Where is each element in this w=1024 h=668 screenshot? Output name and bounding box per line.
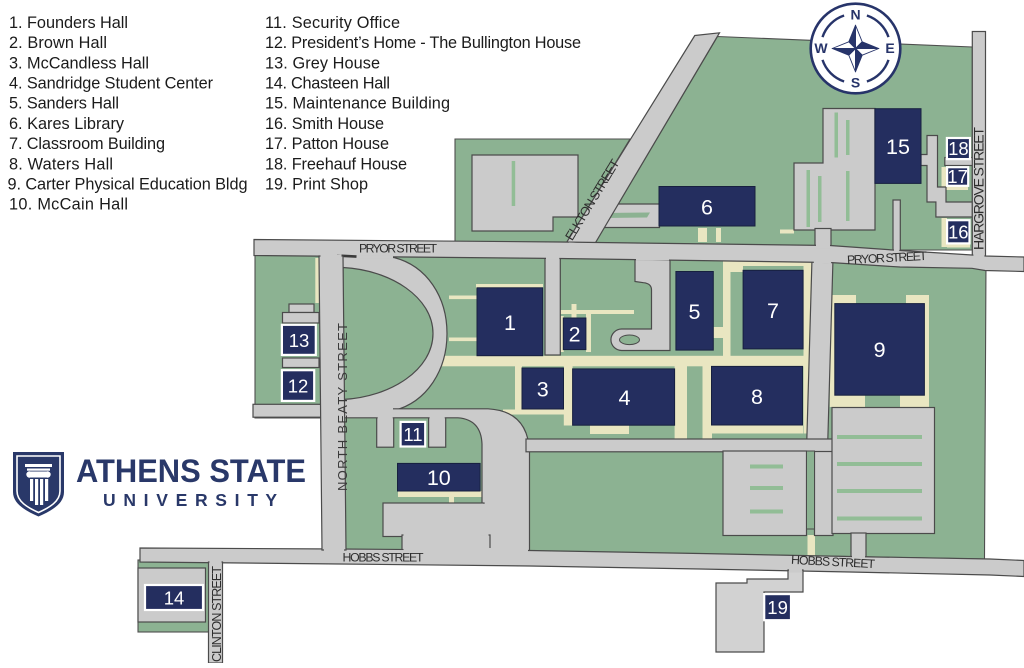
svg-text:13: 13 [289,330,310,351]
svg-text:NORTH BEATY STREET: NORTH BEATY STREET [335,323,350,491]
svg-text:10: 10 [427,466,451,490]
svg-text:2. Brown Hall: 2. Brown Hall [9,34,107,52]
svg-text:HOBBS STREET: HOBBS STREET [343,551,424,565]
svg-text:11. Security Office: 11. Security Office [265,14,400,32]
svg-text:11: 11 [403,424,422,445]
svg-text:16. Smith House: 16. Smith House [265,115,384,133]
svg-text:19: 19 [767,597,788,618]
svg-text:19. Print Shop: 19. Print Shop [265,176,368,194]
svg-text:1: 1 [504,311,516,335]
svg-text:9. Carter Physical Education B: 9. Carter Physical Education Bldg [8,176,248,194]
svg-text:17. Patton House: 17. Patton House [265,135,389,153]
svg-text:9: 9 [874,338,886,362]
svg-text:13. Grey House: 13. Grey House [265,54,380,72]
svg-text:6: 6 [701,196,713,220]
svg-text:15: 15 [886,135,910,159]
svg-text:12. President’s Home - The Bul: 12. President’s Home - The Bullington Ho… [265,34,581,52]
svg-text:18: 18 [948,138,969,159]
svg-text:14. Chasteen Hall: 14. Chasteen Hall [265,75,390,93]
svg-text:4. Sandridge Student Center: 4. Sandridge Student Center [9,75,214,93]
svg-text:PRYOR STREET: PRYOR STREET [359,242,437,256]
svg-text:5: 5 [689,300,701,324]
svg-text:N: N [850,6,860,22]
svg-text:CLINTON STREET: CLINTON STREET [210,566,224,662]
svg-text:4: 4 [619,386,631,410]
svg-text:18. Freehauf House: 18. Freehauf House [265,155,407,173]
svg-text:7: 7 [767,299,779,323]
svg-text:U N I V E R S I T Y: U N I V E R S I T Y [103,490,277,510]
svg-text:17: 17 [947,166,968,187]
svg-text:8. Waters Hall: 8. Waters Hall [9,155,113,173]
svg-text:14: 14 [164,588,185,609]
svg-text:7. Classroom Building: 7. Classroom Building [9,135,165,153]
svg-text:2: 2 [569,323,581,347]
svg-text:S: S [851,74,860,90]
svg-text:8: 8 [751,385,763,409]
svg-text:E: E [885,40,894,56]
svg-text:HARGROVE STREET: HARGROVE STREET [970,127,986,250]
svg-text:3: 3 [537,378,549,402]
svg-text:1. Founders Hall: 1. Founders Hall [9,14,128,32]
svg-text:16: 16 [948,222,969,243]
svg-text:5. Sanders Hall: 5. Sanders Hall [9,95,119,113]
svg-text:W: W [814,40,828,56]
svg-text:6. Kares Library: 6. Kares Library [9,115,125,133]
svg-text:15. Maintenance Building: 15. Maintenance Building [265,95,450,113]
svg-text:3. McCandless Hall: 3. McCandless Hall [9,54,149,72]
svg-text:12: 12 [288,376,309,397]
svg-text:ATHENS STATE: ATHENS STATE [76,453,306,489]
svg-text:10. McCain Hall: 10. McCain Hall [9,196,128,214]
